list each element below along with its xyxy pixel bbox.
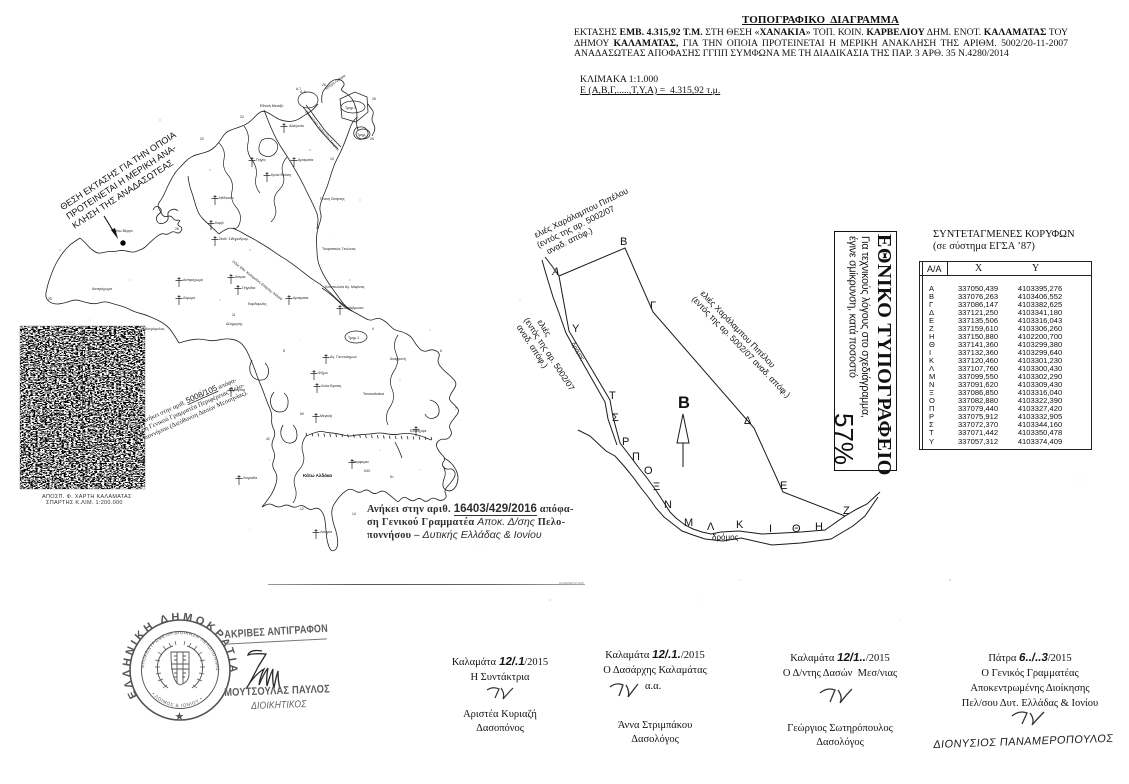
svg-text:Β: Β [620,236,627,248]
svg-text:Κ: Κ [736,519,744,531]
svg-text:Ρ: Ρ [622,436,629,448]
svg-text:Α: Α [551,264,560,278]
svg-text:ΕΛΛΗΝΙΚΗ ΔΗΜΟΚΡΑΤΙΑ: ΕΛΛΗΝΙΚΗ ΔΗΜΟΚΡΑΤΙΑ [121,611,239,700]
svg-text:ελιές Χαράλαμπου Πιπέλου (εντό: ελιές Χαράλαμπου Πιπέλου (εντός της αρ. … [690,287,800,400]
svg-text:Ν: Ν [664,499,672,511]
svg-text:Σ: Σ [612,412,619,424]
svg-text:Ζ: Ζ [843,505,850,517]
svg-text:Λ: Λ [707,521,715,533]
svg-text:Η: Η [815,521,823,533]
svg-text:Ξ: Ξ [653,481,660,493]
svg-text:★: ★ [175,711,185,723]
svg-text:Υ: Υ [572,323,580,335]
svg-text:Μ: Μ [684,517,693,529]
svg-text:Ι: Ι [769,523,772,535]
svg-text:Β: Β [678,394,690,412]
svg-text:Τ: Τ [609,390,616,402]
svg-text:Γ: Γ [650,300,656,312]
svg-text:Π: Π [632,451,640,463]
svg-text:δρόμος: δρόμος [712,533,739,542]
svg-text:Δ: Δ [744,415,752,427]
svg-text:Θ: Θ [792,523,801,535]
svg-text:Ε: Ε [780,480,787,492]
svg-text:Ο: Ο [644,465,653,477]
